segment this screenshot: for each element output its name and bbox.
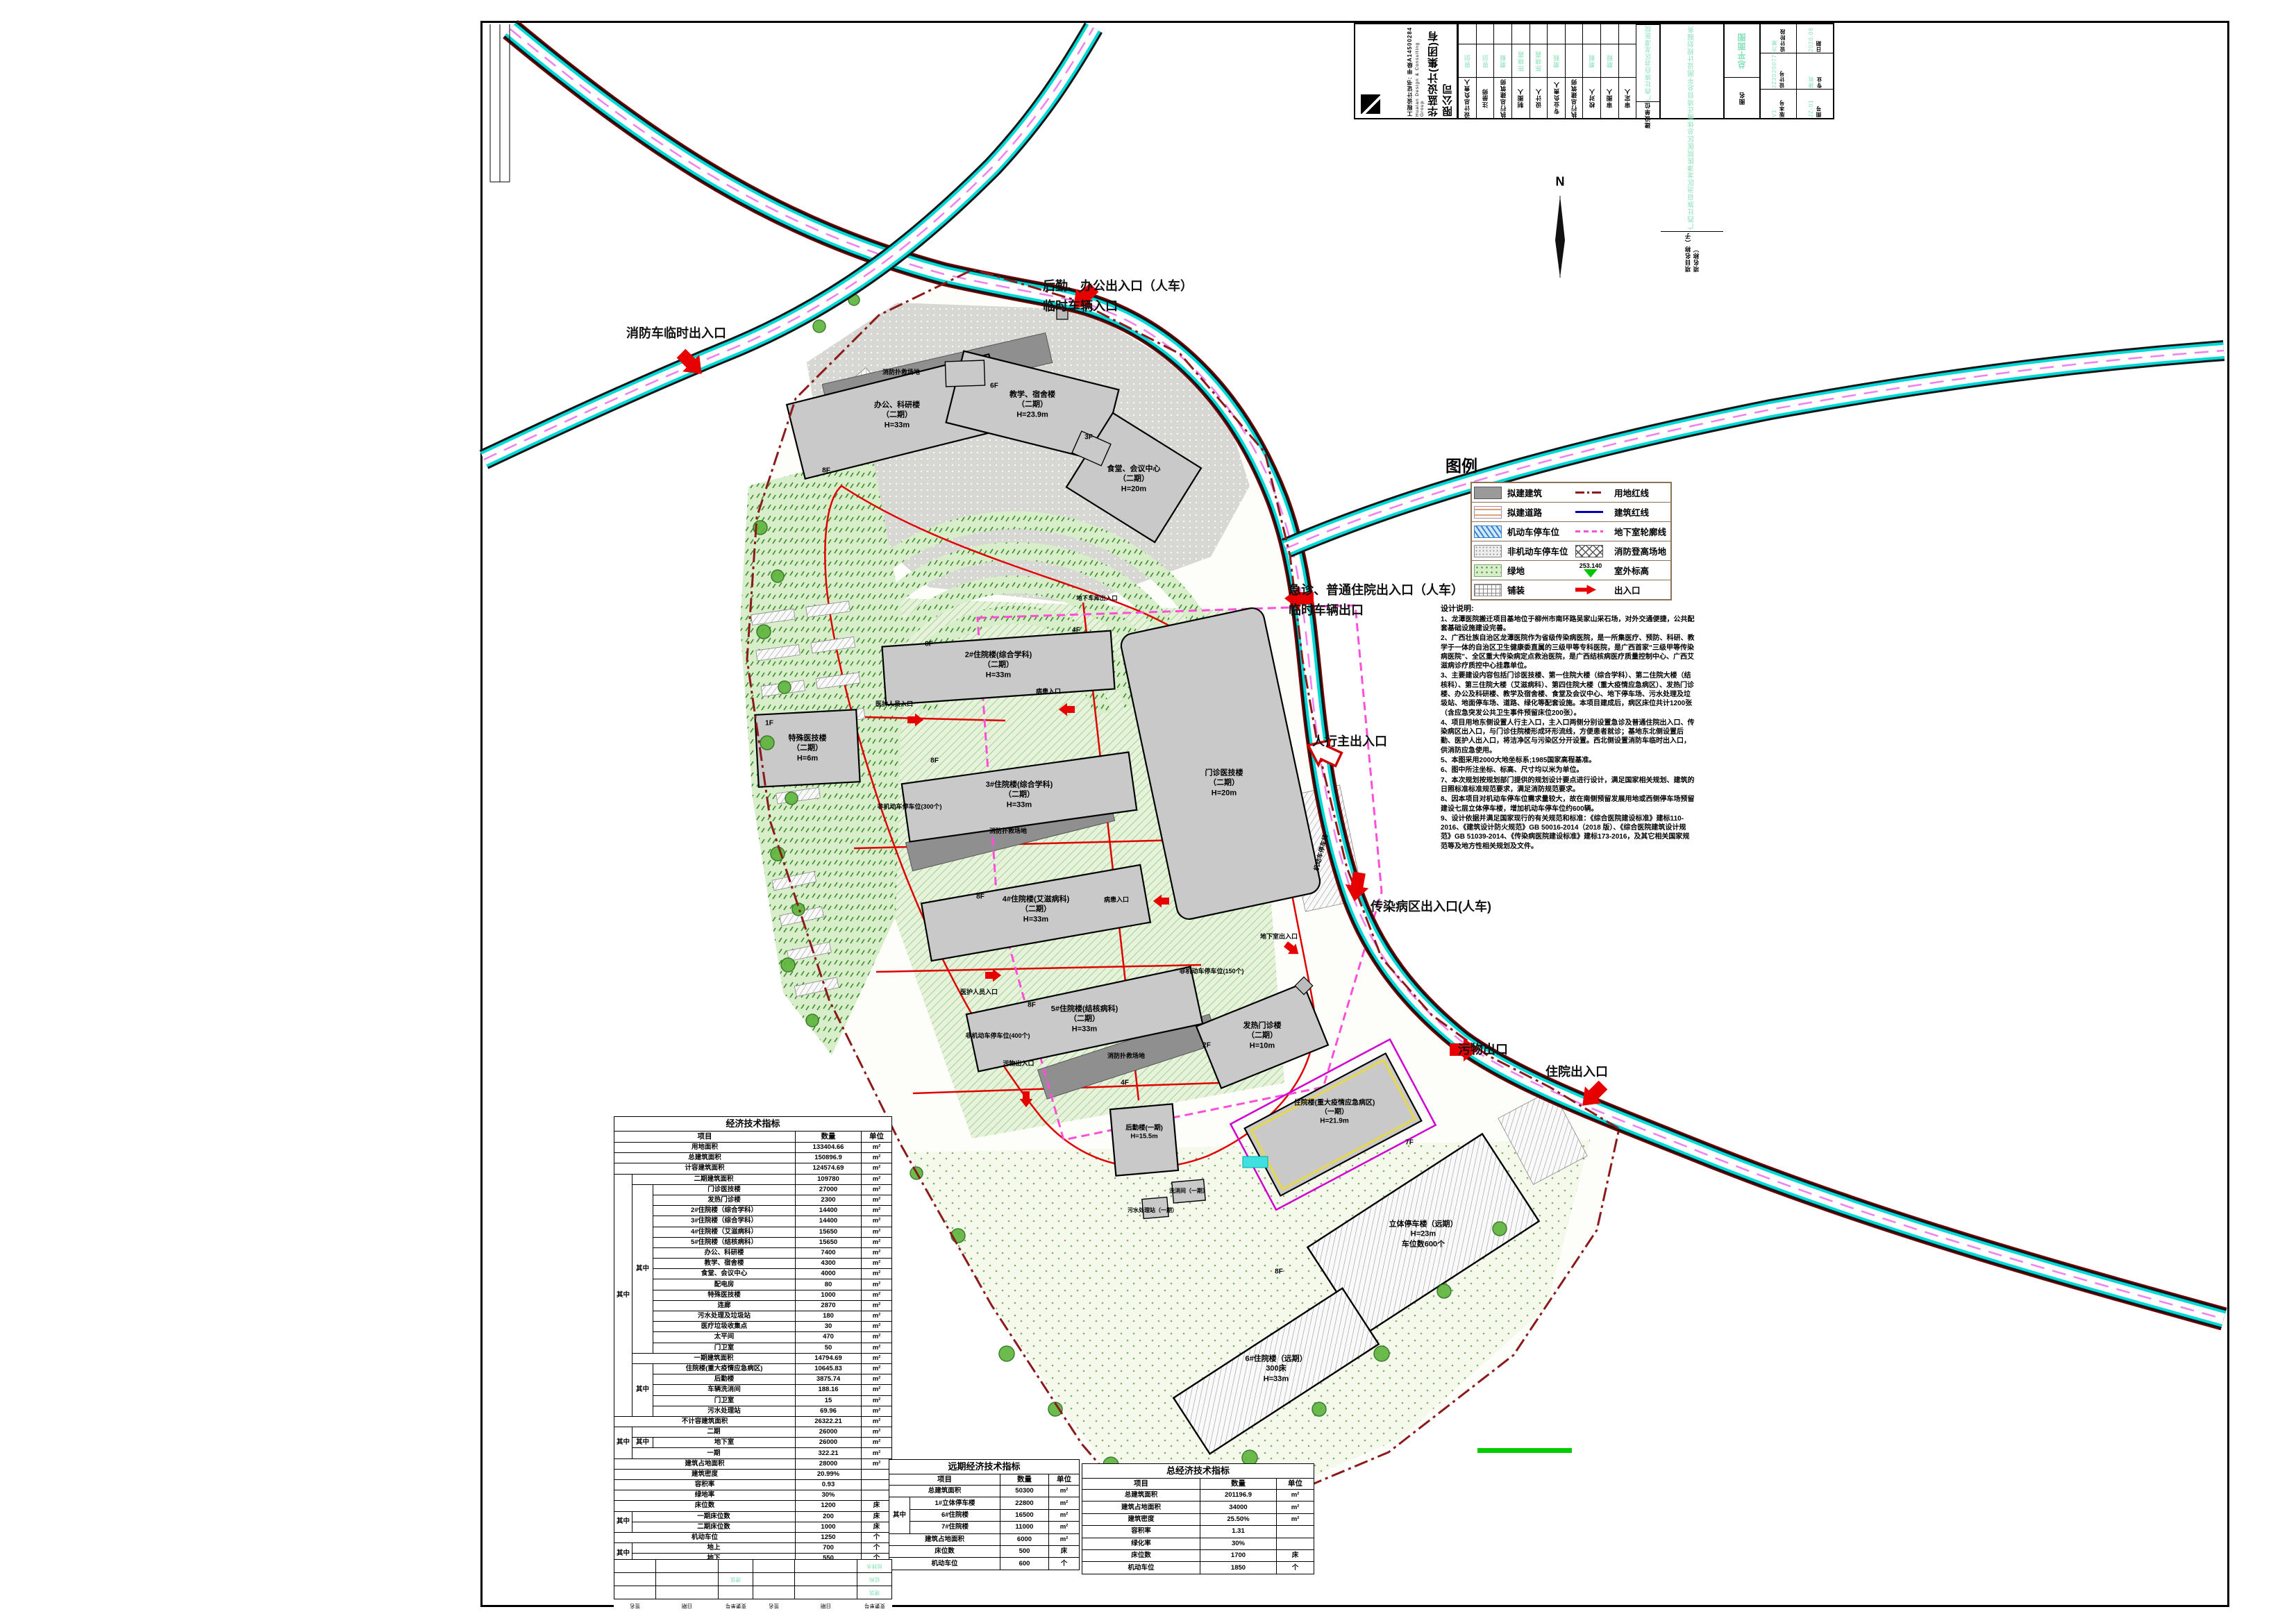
- notes-title: 设计说明:: [1441, 604, 1695, 614]
- legend-title: 图例: [1446, 453, 1477, 476]
- table-row: 发热门诊楼2300m²: [614, 1195, 892, 1205]
- building-label: 住院楼(重大疫情应急病区) （一期） H=21.9m: [1294, 1099, 1375, 1126]
- table-row: 其中二期建筑面积109780m²: [614, 1174, 892, 1184]
- entrance-label-waste: 污物出口: [1458, 1040, 1508, 1060]
- small-label: 洗消间（一期）: [1169, 1188, 1208, 1195]
- table-title: 远期经济技术指标: [889, 1460, 1080, 1474]
- table-row: 其中门诊医技楼27000m²: [614, 1184, 892, 1195]
- tb-meta: 方案设计阶段 2020.06日期 JZ2020077设计号 建筑专业 V1版本号…: [1759, 24, 1833, 118]
- table-row: 其中二期26000m²: [614, 1427, 892, 1438]
- legend-label: 拟建道路: [1505, 502, 1573, 521]
- note-item: 3、主要建设内容包括门诊医技楼、第一住院大楼（综合学科）、第二住院大楼（结核科）…: [1441, 671, 1695, 717]
- legend-label: 绿地: [1505, 560, 1573, 580]
- table-row: 5#住院楼（结核病科）15650m²: [614, 1237, 892, 1247]
- floor-tag: 4F: [1072, 626, 1080, 635]
- company-logo-icon: [1361, 94, 1380, 114]
- paving-swatch-icon: [1474, 584, 1502, 596]
- building-label: 办公、科研楼 （二期） H=33m: [874, 401, 920, 430]
- pool: [1243, 1157, 1268, 1168]
- entrance-label-logistics: 后勤、办公出入口（人车） 临时车辆入口: [1043, 276, 1193, 317]
- table-row: 其中地下室26000m²: [614, 1438, 892, 1448]
- table-row: 机动车位1850个: [1082, 1562, 1314, 1574]
- road-swatch-icon: [1474, 506, 1502, 519]
- tb-figure-name: 总平面图 图名: [1723, 24, 1759, 118]
- entrance-arrow-icon: [1575, 585, 1596, 596]
- floor-tag: 4F: [1121, 1079, 1129, 1088]
- table-row: 建筑占地面积28000m²: [614, 1458, 892, 1469]
- legend: 拟建建筑 用地红线 拟建道路 建筑红线 机动车停车位 地下室轮廓线 非机动车停车…: [1470, 482, 1672, 600]
- table-row: 车辆洗消间188.16m²: [614, 1385, 892, 1395]
- building-label: 门诊医技楼 （二期） H=20m: [1205, 768, 1243, 798]
- building-label: 后勤楼(一期) H=15.5m: [1125, 1125, 1163, 1142]
- tb-row-6: 执行总建筑师: [1565, 24, 1583, 118]
- entrance-label-fire: 消防车临时出入口: [626, 323, 726, 344]
- building-label: 4#住院楼(艾滋病科) （二期） H=33m: [1003, 895, 1070, 925]
- building-label: 食堂、会议中心 （二期） H=20m: [1107, 464, 1161, 494]
- small-label: 消防扑救场地: [989, 827, 1027, 836]
- tb-row-7: 磨毅校对人: [1582, 24, 1600, 118]
- table-row: 太平间470m²: [614, 1332, 892, 1343]
- main-indicator-table: 经济技术指标 项目数量单位 用地面积133404.66m² 总建筑面积15089…: [614, 1116, 892, 1575]
- company-name-cn: 华蓝设计(集团)有限公司: [1426, 26, 1455, 117]
- building-label: 发热门诊楼 （二期） H=10m: [1243, 1021, 1282, 1051]
- design-notes: 设计说明: 1、龙潭医院搬迁项目基地位于柳州市南环路吴家山采石场，对外交通便捷，…: [1441, 604, 1695, 852]
- table-row: 床位数1700床: [1082, 1549, 1314, 1561]
- total-indicator-table: 总经济技术指标 项目数量单位 总建筑面积201196.9m² 建筑占地面积340…: [1082, 1463, 1314, 1574]
- floor-tag: 8F: [1028, 1001, 1036, 1010]
- small-label: 病患入口: [1036, 688, 1061, 696]
- note-item: 1、龙潭医院搬迁项目基地位于柳州市南环路吴家山采石场，对外交通便捷，公共配套基础…: [1441, 615, 1695, 634]
- table-row: 医疗垃圾收集点30m²: [614, 1322, 892, 1332]
- tb-row-1: 曾剑注册师: [1476, 24, 1494, 118]
- green-swatch-icon: [1474, 564, 1502, 577]
- legend-label: 出入口: [1612, 580, 1670, 599]
- building-label: 2#住院楼(综合学科) （二期） H=33m: [965, 650, 1032, 680]
- building-swatch-icon: [1474, 487, 1502, 499]
- small-label: 医护人员入口: [960, 989, 998, 997]
- title-block-company: 工程设计证书: 甲级A14500284 Hualan Design & Cons…: [1355, 24, 1458, 118]
- floor-tag: 8F: [930, 757, 939, 766]
- legend-label: 地下室轮廓线: [1612, 521, 1670, 541]
- corner-sign-table: [490, 24, 510, 182]
- bike-parking-swatch-icon: [1474, 545, 1502, 557]
- table-row: 7#住院楼11000m²: [889, 1522, 1080, 1533]
- project-name: 广西壮族自治区龙潭医院医区总体搬迁项目总平图设计规划服务: [1686, 26, 1697, 230]
- tb-row-0: 曾剑设计总负责人: [1458, 24, 1476, 118]
- revision-strip: 给排水 建筑结构 建筑 签名 日期 变更单号 签名 日期 变更单号: [614, 1559, 892, 1612]
- table-row: 总建筑面积50300m²: [889, 1486, 1080, 1497]
- site-plan-drawing: [0, 0, 2296, 1623]
- table-row: 4#住院楼（艾滋病科）15650m²: [614, 1227, 892, 1237]
- building-label: 3#住院楼(综合学科) （二期） H=33m: [986, 780, 1053, 810]
- floor-tag: 8F: [822, 466, 830, 476]
- small-label: 地下室出入口: [1260, 933, 1298, 941]
- small-label: 非机动车停车位(300个): [877, 803, 941, 811]
- small-label: 非机动车停车位(150个): [1179, 968, 1243, 976]
- note-item: 2、广西壮族自治区龙潭医院作为省级传染病医院，是一所集医疗、预防、科研、教学于一…: [1441, 634, 1695, 671]
- tb-row-5: 磨毅专业负责人: [1547, 24, 1565, 118]
- scale-bar: [1477, 1448, 1572, 1453]
- tb-row-10: 广西壮族自治区龙潭医院建设单位: [1636, 24, 1659, 118]
- note-item: 7、本次规划按规划部门提供的规划设计要点进行设计，满足国家相关规划、建筑的日照标…: [1441, 776, 1695, 795]
- small-label: 污水处理站（一期）: [1128, 1207, 1178, 1214]
- table-row: 床位数1200床: [614, 1501, 892, 1511]
- entrance-label-infectious: 传染病区出入口(人车): [1371, 897, 1491, 917]
- table-row: 食堂、会议中心4000m²: [614, 1269, 892, 1279]
- drawing-title: 总平面图: [1736, 33, 1749, 69]
- table-row: 绿地率30%: [614, 1490, 892, 1501]
- note-item: 9、设计依据并满足国家现行的有关规范和标准：《综合医院建设标准》建标110-20…: [1441, 814, 1695, 851]
- floor-tag: 2F: [1203, 1041, 1211, 1050]
- table-row: 其中住院楼(重大疫情应急病区)10645.83m²: [614, 1363, 892, 1374]
- entrance-label-inpatient: 住院出入口: [1545, 1062, 1608, 1082]
- table-row: 总建筑面积150896.9m²: [614, 1153, 892, 1163]
- tb-row-2: 磨毅执行总建筑师: [1493, 24, 1511, 118]
- table-row: 后勤楼3875.74m²: [614, 1374, 892, 1385]
- tb-row-4: 陈晓霞设计人: [1530, 24, 1548, 118]
- north-label: N: [1556, 174, 1565, 190]
- table-row: 教学、宿舍楼4300m²: [614, 1259, 892, 1269]
- table-row: 6#住院楼16500m²: [889, 1509, 1080, 1521]
- magenta-dash-line-icon: [1575, 530, 1603, 532]
- tb-row-3: 陈晓霞制图人: [1511, 24, 1530, 118]
- table-row: 办公、科研楼7400m²: [614, 1247, 892, 1258]
- tb-row-9: 审定人: [1618, 24, 1636, 118]
- legend-label: 室外标高: [1612, 560, 1670, 580]
- entrance-label-main-pedestrian: 人行主出入口: [1312, 732, 1387, 752]
- table-row: 连廊2870m²: [614, 1300, 892, 1311]
- building-label: 教学、宿舍楼 （二期） H=23.9m: [1009, 390, 1055, 420]
- table-row: 配电房80m²: [614, 1279, 892, 1290]
- table-row: 不计容建筑面积26322.21m²: [614, 1416, 892, 1427]
- table-row: 特殊医技楼1000m²: [614, 1290, 892, 1300]
- small-label: 消防扑救场地: [1107, 1052, 1145, 1061]
- small-label: 医护人员入口: [875, 700, 913, 709]
- note-item: 5、本图采用2000大地坐标系;1985国家高程基准。: [1441, 756, 1695, 765]
- north-compass: [1555, 196, 1565, 278]
- note-item: 4、项目用地东侧设置人行主入口，主入口两侧分别设置急诊及普通住院出入口、传染病区…: [1441, 718, 1695, 755]
- table-row: 建筑占地面积34000m²: [1082, 1502, 1314, 1513]
- table-row: 机动车位600个: [889, 1558, 1080, 1570]
- site-plan-sheet: { "title_block": { "company_cn": "华蓝设计(集…: [0, 0, 2296, 1623]
- car-parking-swatch-icon: [1474, 525, 1502, 538]
- table-row: 建筑密度20.99%: [614, 1469, 892, 1479]
- table-row: 其中一期床位数200床: [614, 1511, 892, 1522]
- table-row: 一期322.21m²: [614, 1448, 892, 1458]
- table-row: 3#住院楼（综合学科）14400m²: [614, 1216, 892, 1227]
- table-row: 污水处理站69.96m²: [614, 1406, 892, 1416]
- table-row: 建筑占地面积6000m²: [889, 1533, 1080, 1545]
- title-block: 工程设计证书: 甲级A14500284 Hualan Design & Cons…: [1354, 23, 1834, 119]
- floor-tag: 1F: [765, 719, 773, 728]
- table-row: 容积率1.31: [1082, 1526, 1314, 1538]
- table-row: 其中地上700个: [614, 1543, 892, 1554]
- table-row: 绿化率30%: [1082, 1538, 1314, 1549]
- table-row: 容积率0.93: [614, 1480, 892, 1490]
- floor-tag: 8F: [1275, 1268, 1283, 1277]
- building-label: 5#住院楼(结核病科) （二期） H=33m: [1051, 1004, 1118, 1034]
- tb-row-8: 磨毅审图人: [1600, 24, 1618, 118]
- table-title: 总经济技术指标: [1082, 1464, 1314, 1479]
- note-item: 6、图中所注坐标、标高、尺寸均以米为单位。: [1441, 766, 1695, 775]
- red-dashdot-line-icon: [1575, 491, 1603, 494]
- floor-tag: 8F: [976, 893, 984, 902]
- floor-tag: 3F: [1084, 433, 1093, 442]
- table-row: 总建筑面积201196.9m²: [1082, 1490, 1314, 1502]
- legend-label: 拟建建筑: [1505, 483, 1573, 502]
- table-title: 经济技术指标: [614, 1117, 892, 1132]
- legend-label: 用地红线: [1612, 483, 1670, 502]
- legend-label: 非机动车停车位: [1505, 541, 1573, 560]
- note-item: 8、因本项目对机动车停车位需求量较大，故在南侧预留发展用地或西侧停车场预留建设七…: [1441, 795, 1695, 814]
- small-label: 地下车库出入口: [1076, 594, 1118, 602]
- table-row: 2#住院楼（综合学科）14400m²: [614, 1206, 892, 1216]
- legend-label: 铺装: [1505, 580, 1573, 599]
- floor-tag: 6F: [990, 382, 998, 391]
- legend-label: 建筑红线: [1612, 502, 1670, 521]
- table-row: 门卫室15m²: [614, 1395, 892, 1406]
- building-label: 6#住院楼（远期） 300床 H=33m: [1245, 1354, 1307, 1384]
- blue-line-icon: [1575, 511, 1603, 513]
- table-row: 用地面积133404.66m²: [614, 1143, 892, 1153]
- tb-project: 广西壮族自治区龙潭医院医区总体搬迁项目总平图设计规划服务 项目名称（子项名称）: [1659, 24, 1724, 118]
- small-label: 病患入口: [1104, 896, 1129, 905]
- entrance-label-emergency: 急诊、普通住院出入口（人车） 临时车辆出口: [1289, 580, 1464, 621]
- legend-label: 消防登高场地: [1612, 541, 1670, 560]
- table-row: 计容建筑面积124574.69m²: [614, 1163, 892, 1174]
- crosshatch-swatch-icon: [1575, 545, 1603, 557]
- table-row: 门卫室50m²: [614, 1343, 892, 1353]
- legend-label: 机动车停车位: [1505, 521, 1573, 541]
- building-label: 立体停车楼（远期） H=23m 车位数600个: [1389, 1220, 1458, 1250]
- floor-tag: 7F: [1405, 1138, 1414, 1147]
- table-row: 床位数500床: [889, 1545, 1080, 1557]
- small-label: 消防扑救场地: [882, 369, 920, 377]
- elevation-marker-icon: 253.140: [1575, 563, 1606, 578]
- small-label: 污物出入口: [1003, 1060, 1034, 1068]
- table-row: 机动车位1250个: [614, 1532, 892, 1542]
- table-row: 污水处理及垃圾站180m²: [614, 1311, 892, 1322]
- table-row: 建筑密度25.50%m²: [1082, 1513, 1314, 1525]
- longterm-indicator-table: 远期经济技术指标 项目数量单位 总建筑面积50300m² 其中1#立体停车楼22…: [889, 1459, 1080, 1570]
- table-row: 其中1#立体停车楼22800m²: [889, 1497, 1080, 1509]
- company-cert: 工程设计证书: 甲级A14500284: [1406, 26, 1414, 117]
- table-row: 一期建筑面积14794.69m²: [614, 1353, 892, 1363]
- company-name-en: Hualan Design & Consulting Group: [1415, 26, 1425, 117]
- building-label: 特殊医技楼 （二期） H=6m: [789, 734, 827, 764]
- small-label: 非机动车停车位(400个): [965, 1032, 1030, 1041]
- table-row: 二期床位数1000床: [614, 1522, 892, 1532]
- floor-tag: 8F: [925, 640, 933, 649]
